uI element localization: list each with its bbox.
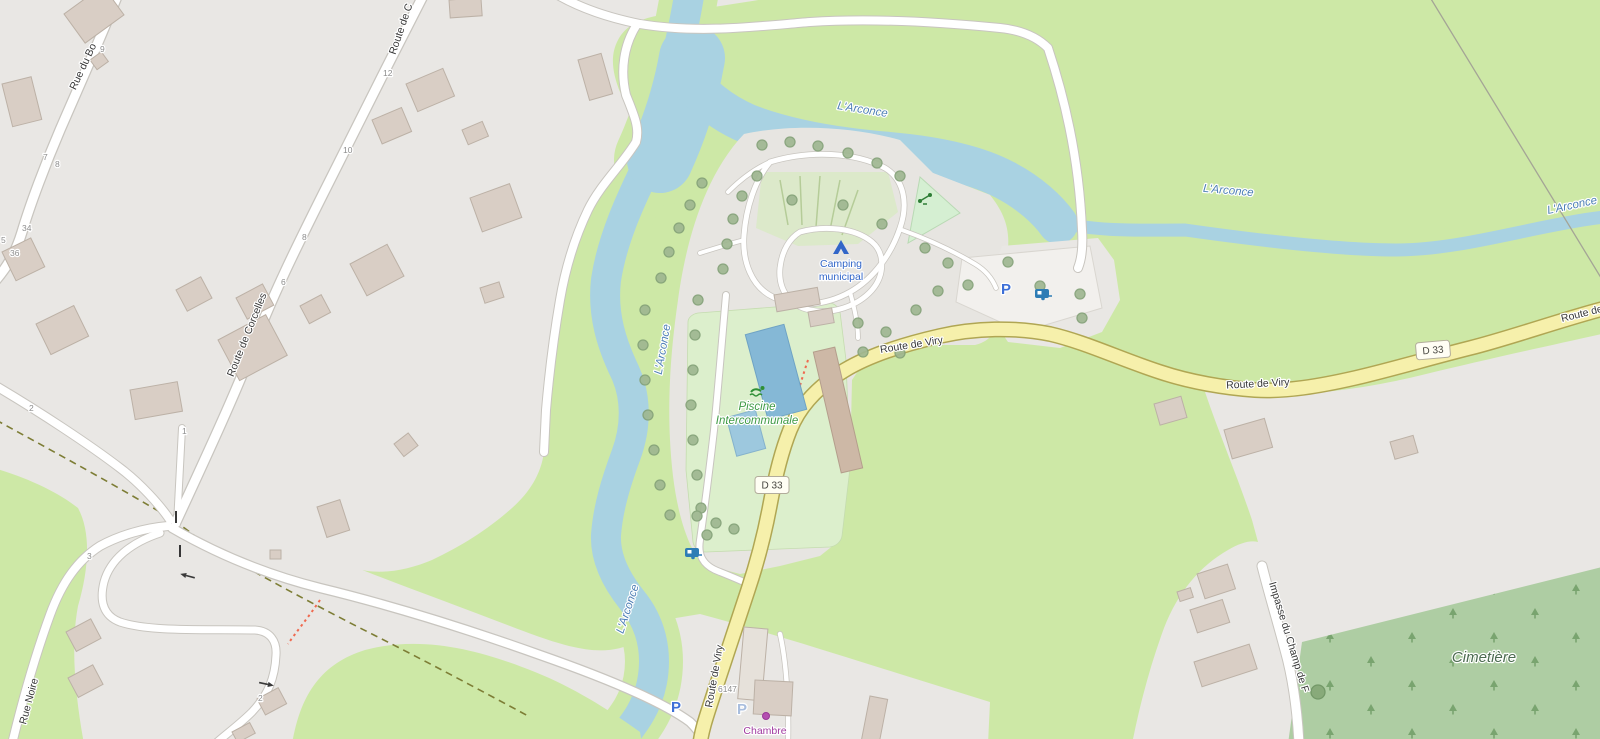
house-number: 2 bbox=[29, 403, 34, 413]
parking-p-2: P bbox=[671, 699, 681, 716]
chambre-label: Chambre bbox=[743, 725, 786, 737]
house-number: 7 bbox=[43, 152, 48, 162]
camping-label-line2: municipal bbox=[819, 271, 863, 283]
house-number: 3 bbox=[87, 551, 92, 561]
house-number: 12 bbox=[383, 68, 393, 78]
house-number: 2 bbox=[258, 693, 263, 703]
house-number: 8 bbox=[55, 159, 60, 169]
map-canvas[interactable]: Rue du Bo Route de C Route de Corcelles … bbox=[0, 0, 1600, 739]
cimetiere-label: Cimetière bbox=[1452, 649, 1516, 666]
parking-p-faded: P bbox=[737, 701, 747, 718]
house-number: 1 bbox=[182, 426, 187, 436]
svg-text:D 33: D 33 bbox=[761, 481, 783, 492]
road-shield-d33-1: D 33 bbox=[755, 477, 789, 494]
house-number: 6147 bbox=[718, 684, 737, 694]
svg-text:D 33: D 33 bbox=[1422, 345, 1444, 358]
piscine-label-line1: Piscine bbox=[738, 401, 775, 413]
house-number: 5 bbox=[1, 235, 6, 245]
house-number: 8 bbox=[302, 232, 307, 242]
piscine-label-line2: Intercommunale bbox=[716, 415, 798, 427]
guesthouse-dot-icon bbox=[763, 713, 770, 720]
road-shield-d33-2: D 33 bbox=[1415, 340, 1450, 360]
house-number: 9 bbox=[100, 44, 105, 54]
camping-label-line1: Camping bbox=[820, 258, 862, 270]
parking-p-1: P bbox=[1001, 281, 1011, 298]
house-number: 36 bbox=[10, 248, 20, 258]
house-number: 10 bbox=[343, 145, 353, 155]
house-number: 6 bbox=[281, 277, 286, 287]
house-number: 34 bbox=[22, 223, 32, 233]
